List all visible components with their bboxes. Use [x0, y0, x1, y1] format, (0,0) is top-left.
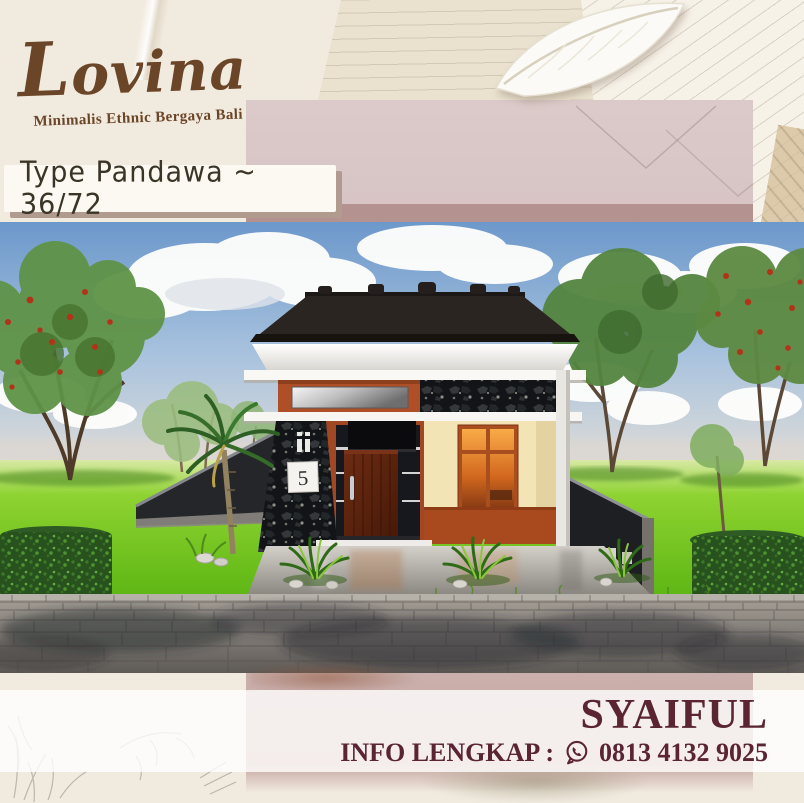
type-banner: Type Pandawa ~ 36/72: [4, 165, 336, 212]
info-label: INFO LENGKAP :: [340, 738, 554, 768]
house-number: 5: [297, 466, 308, 490]
phone-number: 0813 4132 9025: [599, 738, 768, 768]
door-canopy: [348, 421, 416, 451]
footer-band: SYAIFUL INFO LENGKAP : 0813 4132 9025: [0, 690, 804, 772]
clerestory-glass: [292, 387, 408, 408]
agent-name: SYAIFUL: [580, 694, 768, 737]
contact-info-row: INFO LENGKAP : 0813 4132 9025: [340, 738, 768, 768]
type-banner-label: Type Pandawa ~ 36/72: [20, 156, 336, 221]
brand-name: Lovina: [16, 22, 269, 112]
front-window: [458, 425, 518, 514]
roof-fascia: [252, 344, 578, 372]
lower-orange-wall: [424, 507, 556, 544]
faded-leaf-blob: [420, 768, 650, 803]
whatsapp-icon: [563, 739, 590, 766]
lower-ledge: [244, 412, 582, 421]
door-handle: [350, 476, 354, 500]
entry: [324, 421, 424, 544]
stone-band: [420, 380, 556, 414]
poster: Lovina Minimalis Ethnic Bergaya Bali Typ…: [0, 0, 804, 803]
brand-logo: Lovina Minimalis Ethnic Bergaya Bali: [16, 22, 269, 131]
house-number-plaque: 5: [287, 461, 318, 492]
feather-icon: [488, 0, 693, 112]
street: [0, 585, 804, 673]
upper-ledge: [244, 370, 586, 380]
house-render: 5: [0, 222, 804, 673]
